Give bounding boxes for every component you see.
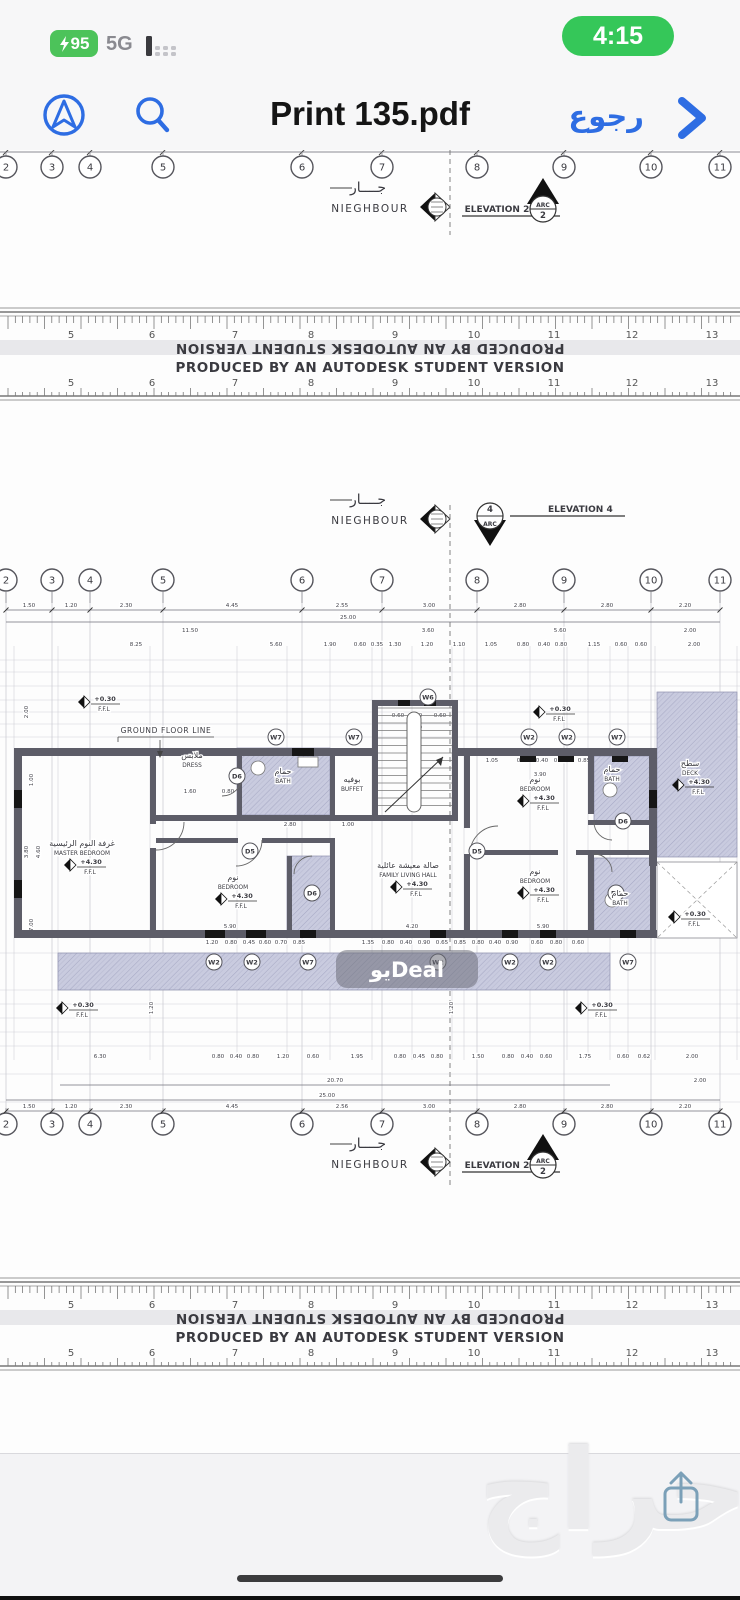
battery-indicator: 95 bbox=[50, 30, 98, 57]
wall bbox=[650, 862, 656, 938]
hatched-area bbox=[58, 953, 610, 990]
room-label-en: BATH bbox=[612, 901, 627, 907]
window-tag-label: W7 bbox=[302, 959, 314, 967]
grid-bubble-label: 3 bbox=[49, 576, 55, 587]
room-label-ar: نوم bbox=[529, 867, 540, 876]
dimension-label: 2.80 bbox=[601, 1104, 614, 1110]
neighbour-label-ar: جــــار bbox=[349, 180, 386, 196]
dimension-label: 0.90 bbox=[506, 940, 519, 946]
ruler-number: 6 bbox=[149, 1348, 155, 1359]
ruler-number: 9 bbox=[392, 1300, 398, 1311]
room-label-en: BEDROOM bbox=[218, 885, 248, 891]
grid-bubble-label: 11 bbox=[714, 163, 727, 174]
door-tag-label: D5 bbox=[245, 848, 255, 856]
ruler-number: 7 bbox=[232, 1348, 238, 1359]
sink-fixture bbox=[298, 757, 318, 767]
grid-bubble-label: 3 bbox=[49, 1120, 55, 1131]
wc-fixture bbox=[251, 761, 265, 775]
dimension-label: 2.30 bbox=[120, 603, 133, 609]
dimension-label: 0.60 bbox=[531, 940, 544, 946]
window-tag-label: W7 bbox=[622, 959, 634, 967]
neighbour-label-en: NIEGHBOUR bbox=[331, 1159, 408, 1171]
dimension-label: 20.70 bbox=[327, 1078, 343, 1084]
neighbour-label-en: NIEGHBOUR bbox=[331, 515, 408, 527]
grid-bubble-label: 7 bbox=[379, 163, 385, 174]
level-value: +0.30 bbox=[684, 910, 706, 918]
dimension-label: 25.00 bbox=[340, 615, 356, 621]
dimension-label: 0.85 bbox=[293, 940, 306, 946]
pdf-toolbar: Print 135.pdf رجوع bbox=[0, 85, 740, 150]
ground-floor-line-label: GROUND FLOOR LINE bbox=[121, 726, 212, 735]
lightning-bolt-icon bbox=[59, 36, 70, 52]
grid-bubble-label: 10 bbox=[645, 576, 658, 587]
elevation-tag-text: ARC bbox=[536, 202, 550, 209]
grid-bubble-label: 6 bbox=[299, 163, 305, 174]
opening-jamb bbox=[612, 756, 628, 762]
dimension-label: 2.20 bbox=[679, 1104, 692, 1110]
dimension-label: 1.60 bbox=[184, 789, 197, 795]
door-tag-label: D6 bbox=[618, 818, 628, 826]
elevation-tag-text: 4 bbox=[487, 505, 493, 515]
dimension-label: 0.80 bbox=[517, 642, 530, 648]
ruler-number: 10 bbox=[468, 1348, 481, 1359]
dimension-label: 6.30 bbox=[94, 1054, 107, 1060]
ruler-number: 7 bbox=[232, 1300, 238, 1311]
dimension-label: 2.56 bbox=[336, 1104, 349, 1110]
grid-bubble-label: 2 bbox=[3, 576, 9, 587]
dimension-label: 2.00 bbox=[686, 1054, 699, 1060]
autodesk-banner: PRODUCED BY AN AUTODESK STUDENT VERSION bbox=[175, 1330, 564, 1346]
grid-bubble-label: 6 bbox=[299, 1120, 305, 1131]
level-value: +4.30 bbox=[533, 886, 555, 894]
dimension-label: 0.80 bbox=[212, 1054, 225, 1060]
dimension-label: 4.20 bbox=[406, 924, 419, 930]
level-value: +4.30 bbox=[688, 778, 710, 786]
dimension-label: 2.80 bbox=[514, 603, 527, 609]
level-value: +0.30 bbox=[94, 695, 116, 703]
grid-bubble-label: 5 bbox=[160, 163, 166, 174]
window-tag-label: W2 bbox=[504, 959, 516, 967]
opening-jamb bbox=[649, 790, 657, 808]
window-tag-label: W2 bbox=[208, 959, 220, 967]
room-label-ar: صالة معيشة عائلية bbox=[377, 861, 439, 870]
ffl-label: F.F.L bbox=[410, 892, 422, 898]
battery-percent: 95 bbox=[71, 34, 90, 54]
ruler-number: 10 bbox=[468, 330, 481, 341]
door-tag-label: D6 bbox=[307, 890, 317, 898]
grid-bubble-label: 6 bbox=[299, 576, 305, 587]
ffl-label: F.F.L bbox=[76, 1013, 88, 1019]
dimension-label: 2.55 bbox=[336, 603, 349, 609]
ruler-number: 10 bbox=[468, 1300, 481, 1311]
wall bbox=[588, 854, 594, 930]
dimension-label: 0.60 bbox=[354, 642, 367, 648]
dimension-label: 2.00 bbox=[688, 642, 701, 648]
dimension-label: 5.60 bbox=[270, 642, 283, 648]
dimension-label: 0.80 bbox=[222, 789, 235, 795]
ruler-number: 6 bbox=[149, 330, 155, 341]
opening-jamb bbox=[246, 930, 266, 938]
dimension-label: 1.20 bbox=[65, 1104, 78, 1110]
window-tag-label: W2 bbox=[523, 734, 535, 742]
dimension-label: 4.45 bbox=[226, 1104, 239, 1110]
ffl-label: F.F.L bbox=[537, 806, 549, 812]
wall bbox=[372, 700, 378, 754]
ruler-number: 11 bbox=[548, 330, 561, 341]
opening-jamb bbox=[620, 930, 636, 938]
elevation-tag-text: 2 bbox=[540, 1167, 546, 1177]
dimension-label: 2.20 bbox=[679, 603, 692, 609]
ruler-number: 6 bbox=[149, 1300, 155, 1311]
room-label-ar: نوم bbox=[529, 775, 540, 784]
dimension-label: 1.20 bbox=[149, 1001, 155, 1014]
opening-jamb bbox=[14, 880, 22, 898]
dimension-label: 1.50 bbox=[23, 1104, 36, 1110]
dimension-label: 0.80 bbox=[382, 940, 395, 946]
opening-jamb bbox=[292, 748, 314, 756]
ruler-number: 13 bbox=[706, 1300, 719, 1311]
pdf-page[interactable]: 234567891011جــــارNIEGHBOURELEVATION 2A… bbox=[0, 150, 740, 1453]
wall bbox=[452, 754, 458, 815]
dimension-label: 5.90 bbox=[537, 924, 550, 930]
dimension-label: 1.10 bbox=[453, 642, 466, 648]
ruler-number: 5 bbox=[68, 1348, 74, 1359]
dimension-label: 0.62 bbox=[638, 1054, 650, 1060]
dimension-label: 1.20 bbox=[421, 642, 434, 648]
opening-jamb bbox=[205, 930, 225, 938]
dimension-label: 5.90 bbox=[224, 924, 237, 930]
opening-jamb bbox=[430, 930, 446, 938]
door-tag-label: D5 bbox=[472, 848, 482, 856]
signal-bars-icon bbox=[146, 32, 180, 58]
dimension-label: 0.80 bbox=[225, 940, 238, 946]
elevation-tag-text: ARC bbox=[536, 1158, 550, 1165]
room-label-en: MASTER BEDROOM bbox=[54, 851, 110, 857]
ruler-number: 11 bbox=[548, 1300, 561, 1311]
ffl-label: F.F.L bbox=[692, 790, 704, 796]
ruler-number: 12 bbox=[626, 330, 639, 341]
grid-bubble-label: 2 bbox=[3, 163, 9, 174]
wall bbox=[452, 700, 458, 754]
autodesk-banner-mirrored: PRODUCED BY AN AUTODESK STUDENT VERSION bbox=[175, 340, 564, 356]
grid-bubble-label: 11 bbox=[714, 576, 727, 587]
dimension-label: 1.95 bbox=[351, 1054, 364, 1060]
dimension-label: 1.50 bbox=[472, 1054, 485, 1060]
window-tag-label: W7 bbox=[270, 734, 282, 742]
ruler-number: 11 bbox=[548, 1348, 561, 1359]
share-button[interactable] bbox=[656, 1466, 706, 1526]
dimension-label: 7.00 bbox=[29, 918, 35, 931]
window-tag-label: W7 bbox=[348, 734, 360, 742]
room-label-ar: سطح bbox=[681, 759, 700, 768]
grid-bubble-label: 8 bbox=[474, 576, 480, 587]
grid-bubble-label: 7 bbox=[379, 1120, 385, 1131]
time-pill[interactable]: 4:15 bbox=[562, 16, 674, 56]
room-label-en: BEDROOM bbox=[520, 787, 550, 793]
dimension-label: 0.35 bbox=[371, 642, 384, 648]
level-value: +0.30 bbox=[591, 1001, 613, 1009]
ruler-number: 13 bbox=[706, 378, 719, 389]
dimension-label: 0.40 bbox=[521, 1054, 534, 1060]
dimension-label: 0.60 bbox=[635, 642, 648, 648]
ruler-number: 9 bbox=[392, 378, 398, 389]
ruler-number: 13 bbox=[706, 1348, 719, 1359]
wall bbox=[237, 756, 242, 818]
ruler-number: 8 bbox=[308, 378, 314, 389]
phone-screen: 95 5G 4:15 Print 135.pdf رجو bbox=[0, 0, 740, 1600]
wall bbox=[14, 930, 657, 938]
dimension-label: 2.00 bbox=[24, 705, 30, 718]
dimension-label: 2.80 bbox=[514, 1104, 527, 1110]
room-label-en: BATH bbox=[275, 779, 290, 785]
room-label-ar: حمام bbox=[604, 765, 621, 774]
room-label-en: DECK bbox=[682, 771, 698, 777]
floor-plan-drawing: 234567891011جــــارNIEGHBOURELEVATION 2A… bbox=[0, 150, 740, 1453]
dimension-label: 0.60 bbox=[307, 1054, 320, 1060]
bottom-bar: حراج bbox=[0, 1453, 740, 1597]
ruler-number: 7 bbox=[232, 378, 238, 389]
dimension-label: 2.00 bbox=[694, 1078, 707, 1084]
status-bar: 95 5G 4:15 bbox=[0, 0, 740, 85]
level-value: +0.30 bbox=[72, 1001, 94, 1009]
dimension-label: 2.30 bbox=[120, 1104, 133, 1110]
room-label-ar: حمام bbox=[275, 767, 292, 776]
dimension-label: 0.40 bbox=[230, 1054, 243, 1060]
ruler-number: 9 bbox=[392, 330, 398, 341]
dimension-label: 25.00 bbox=[319, 1093, 335, 1099]
dimension-label: 5.60 bbox=[554, 628, 567, 634]
wall bbox=[14, 748, 22, 938]
dimension-label: 0.70 bbox=[275, 940, 288, 946]
level-value: +0.30 bbox=[549, 705, 571, 713]
opening-jamb bbox=[520, 756, 536, 762]
dimension-label: 0.80 bbox=[431, 1054, 444, 1060]
dimension-label: 2.00 bbox=[684, 628, 697, 634]
clock-time: 4:15 bbox=[593, 22, 643, 51]
ruler-number: 11 bbox=[548, 378, 561, 389]
room-label-ar: ملابس bbox=[181, 751, 202, 760]
grid-bubble-label: 5 bbox=[160, 1120, 166, 1131]
dimension-label: 0.40 bbox=[489, 940, 502, 946]
dimension-label: 0.60 bbox=[259, 940, 272, 946]
wall bbox=[372, 754, 378, 815]
dimension-label: 8.25 bbox=[130, 642, 143, 648]
wall bbox=[156, 815, 372, 821]
dimension-label: 1.20 bbox=[65, 603, 78, 609]
room-label-en: BATH bbox=[604, 777, 619, 783]
opening-jamb bbox=[558, 756, 574, 762]
ruler-number: 7 bbox=[232, 330, 238, 341]
dimension-label: 3.80 bbox=[24, 845, 30, 858]
dimension-label: 4.45 bbox=[226, 603, 239, 609]
opening-jamb bbox=[502, 930, 518, 938]
dimension-label: 0.80 bbox=[550, 940, 563, 946]
autodesk-banner-mirrored: PRODUCED BY AN AUTODESK STUDENT VERSION bbox=[175, 1310, 564, 1326]
elevation-label: ELEVATION 2 bbox=[465, 1161, 530, 1171]
elevation-tag-text: ARC bbox=[483, 521, 497, 528]
ffl-label: F.F.L bbox=[553, 717, 565, 723]
dimension-label: 0.60 bbox=[617, 1054, 630, 1060]
opening-jamb bbox=[300, 930, 316, 938]
dimension-label: 0.85 bbox=[454, 940, 467, 946]
ruler-number: 9 bbox=[392, 1348, 398, 1359]
dimension-label: 2.80 bbox=[601, 603, 614, 609]
home-indicator[interactable] bbox=[237, 1575, 503, 1582]
ffl-label: F.F.L bbox=[98, 707, 110, 713]
dimension-label: 1.05 bbox=[486, 758, 499, 764]
ruler-number: 5 bbox=[68, 1300, 74, 1311]
dimension-label: 1.05 bbox=[485, 642, 498, 648]
room-label-en: FAMILY LIVING HALL bbox=[379, 873, 437, 879]
grid-bubble-label: 4 bbox=[87, 576, 93, 587]
elevation-label: ELEVATION 4 bbox=[548, 505, 613, 515]
dimension-label: 0.40 bbox=[400, 940, 413, 946]
wall bbox=[150, 848, 156, 930]
opening-jamb bbox=[14, 790, 22, 808]
opening-jamb bbox=[398, 700, 410, 706]
grid-bubble-label: 9 bbox=[561, 163, 567, 174]
wall bbox=[464, 854, 470, 930]
neighbour-label-en: NIEGHBOUR bbox=[331, 203, 408, 215]
level-value: +4.30 bbox=[231, 892, 253, 900]
window-tag-label: W7 bbox=[611, 734, 623, 742]
neighbour-label-ar: جــــار bbox=[349, 492, 386, 508]
ruler-number: 13 bbox=[706, 330, 719, 341]
dimension-label: 0.65 bbox=[436, 940, 449, 946]
dimension-label: 0.80 bbox=[394, 1054, 407, 1060]
dimension-label: 0.40 bbox=[538, 642, 551, 648]
wall bbox=[464, 756, 470, 828]
dimension-label: 1.20 bbox=[449, 1001, 455, 1014]
ffl-label: F.F.L bbox=[84, 870, 96, 876]
ruler-number: 8 bbox=[308, 1300, 314, 1311]
dimension-label: 0.80 bbox=[472, 940, 485, 946]
grid-bubble-label: 8 bbox=[474, 1120, 480, 1131]
grid-bubble-label: 5 bbox=[160, 576, 166, 587]
ffl-label: F.F.L bbox=[537, 898, 549, 904]
dimension-label: 3.00 bbox=[423, 603, 436, 609]
dimension-label: 0.60 bbox=[572, 940, 585, 946]
dimension-label: 0.80 bbox=[247, 1054, 260, 1060]
ffl-label: F.F.L bbox=[235, 904, 247, 910]
opening-jamb bbox=[540, 930, 556, 938]
wall bbox=[287, 856, 292, 930]
wall bbox=[330, 756, 335, 818]
elevation-tag-text: 2 bbox=[540, 211, 546, 221]
ruler-number: 10 bbox=[468, 378, 481, 389]
dimension-label: 1.20 bbox=[277, 1054, 290, 1060]
dimension-label: 3.60 bbox=[422, 628, 435, 634]
dimension-label: 1.35 bbox=[362, 940, 375, 946]
room-label-ar: بوفيه bbox=[344, 775, 361, 784]
ruler-number: 12 bbox=[626, 378, 639, 389]
ffl-label: F.F.L bbox=[688, 922, 700, 928]
dimension-label: 0.60 bbox=[434, 713, 447, 719]
wall bbox=[456, 748, 657, 756]
stair-rail bbox=[407, 712, 421, 812]
ruler-number: 8 bbox=[308, 330, 314, 341]
back-button[interactable]: رجوع bbox=[568, 99, 644, 133]
ffl-label: F.F.L bbox=[595, 1013, 607, 1019]
grid-bubble-label: 10 bbox=[645, 1120, 658, 1131]
door-tag-label: D6 bbox=[232, 773, 242, 781]
level-value: +4.30 bbox=[533, 794, 555, 802]
wall bbox=[588, 756, 594, 814]
dimension-label: 1.30 bbox=[389, 642, 402, 648]
dimension-label: 4.60 bbox=[36, 845, 42, 858]
window-tag-label: W2 bbox=[561, 734, 573, 742]
window-tag-label: W2 bbox=[542, 959, 554, 967]
dimension-label: 1.00 bbox=[342, 822, 355, 828]
level-value: +4.30 bbox=[80, 858, 102, 866]
dimension-label: 0.60 bbox=[615, 642, 628, 648]
dimension-label: 3.00 bbox=[423, 1104, 436, 1110]
wall bbox=[262, 838, 330, 843]
dimension-label: 0.40 bbox=[536, 758, 549, 764]
room-label-en: DRESS bbox=[182, 763, 202, 769]
wall bbox=[372, 700, 458, 706]
wall bbox=[330, 838, 335, 935]
watermark-chip-label: يوDeal bbox=[369, 958, 444, 982]
share-icon bbox=[656, 1466, 706, 1526]
room-label-ar: حمام bbox=[612, 889, 629, 898]
dimension-label: 1.20 bbox=[206, 940, 219, 946]
grid-bubble-label: 10 bbox=[645, 163, 658, 174]
dimension-label: 0.45 bbox=[413, 1054, 426, 1060]
chevron-right-icon[interactable] bbox=[670, 93, 712, 143]
network-label: 5G bbox=[106, 33, 133, 56]
dimension-label: 0.60 bbox=[392, 713, 405, 719]
dimension-label: 1.50 bbox=[23, 603, 36, 609]
dimension-label: 1.90 bbox=[324, 642, 337, 648]
wall bbox=[576, 850, 652, 855]
dimension-label: 0.90 bbox=[418, 940, 431, 946]
ruler-number: 8 bbox=[308, 1348, 314, 1359]
grid-bubble-label: 11 bbox=[714, 1120, 727, 1131]
back-label: رجوع bbox=[568, 99, 644, 133]
level-value: +4.30 bbox=[406, 880, 428, 888]
window-tag-label: W2 bbox=[246, 959, 258, 967]
grid-bubble-label: 3 bbox=[49, 163, 55, 174]
grid-bubble-label: 7 bbox=[379, 576, 385, 587]
grid-bubble-label: 4 bbox=[87, 1120, 93, 1131]
dimension-label: 11.50 bbox=[182, 628, 198, 634]
ruler-number: 5 bbox=[68, 330, 74, 341]
dimension-label: 1.15 bbox=[588, 642, 601, 648]
screen-bottom-edge bbox=[0, 1596, 740, 1600]
wall bbox=[156, 838, 238, 843]
grid-bubble-label: 8 bbox=[474, 163, 480, 174]
dimension-label: 0.60 bbox=[540, 1054, 553, 1060]
grid-bubble-label: 4 bbox=[87, 163, 93, 174]
autodesk-banner: PRODUCED BY AN AUTODESK STUDENT VERSION bbox=[175, 360, 564, 376]
dimension-label: 1.75 bbox=[579, 1054, 592, 1060]
elevation-label: ELEVATION 2 bbox=[465, 205, 530, 215]
dimension-label: 2.80 bbox=[284, 822, 297, 828]
wall bbox=[372, 815, 458, 821]
ruler-number: 12 bbox=[626, 1348, 639, 1359]
wall bbox=[150, 756, 156, 824]
ruler-number: 6 bbox=[149, 378, 155, 389]
ruler-number: 5 bbox=[68, 378, 74, 389]
room-label-ar: غرفة النوم الرئيسية bbox=[49, 839, 115, 848]
grid-bubble-label: 9 bbox=[561, 576, 567, 587]
room-label-en: BEDROOM bbox=[520, 879, 550, 885]
room-label-en: BUFFET bbox=[341, 787, 364, 793]
dimension-label: 1.00 bbox=[29, 773, 35, 786]
ruler-number: 12 bbox=[626, 1300, 639, 1311]
window-tag-label: W6 bbox=[422, 694, 434, 702]
